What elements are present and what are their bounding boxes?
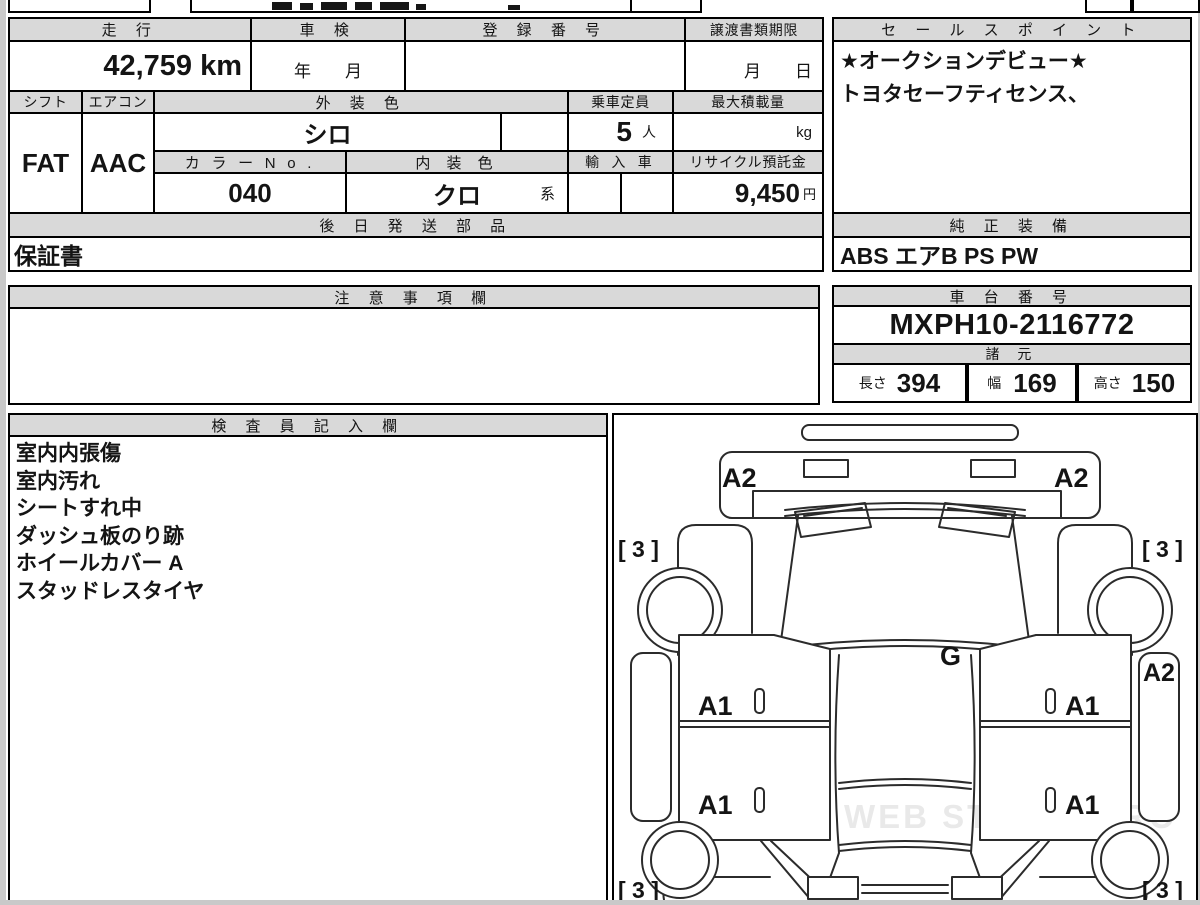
cropped-row-text-fragment	[300, 3, 313, 10]
cropped-cell	[1132, 0, 1200, 13]
shift-header: シフト	[10, 92, 81, 112]
recycle-fee-value: 9,450円	[674, 174, 822, 212]
cropped-cell	[630, 0, 702, 13]
spec-height: 高さ150	[1079, 365, 1190, 401]
notes-table: 注 意 事 項 欄	[8, 285, 820, 405]
roof-side-left	[835, 655, 839, 853]
transfer-docs-value: 月 日	[686, 42, 822, 90]
exterior-color-extra	[502, 114, 567, 150]
capacity-number: 5	[616, 116, 632, 148]
inspector-note: ホイールカバー A	[16, 550, 183, 578]
import-value-right	[622, 174, 672, 212]
cropped-row-text-fragment	[416, 4, 426, 10]
spec-height-value: 150	[1132, 368, 1175, 399]
cropped-row-text-fragment	[321, 2, 347, 10]
notes-header: 注 意 事 項 欄	[10, 287, 818, 307]
capacity-header: 乗車定員	[569, 92, 672, 112]
registration-header: 登 録 番 号	[406, 19, 684, 40]
sales-point-body: ★オークションデビュー★ トヨタセーフティセンス、	[834, 42, 1190, 212]
spec-length-label: 長さ	[859, 373, 887, 393]
recycle-fee-header: リサイクル預託金	[674, 152, 822, 172]
aircon-header: エアコン	[83, 92, 153, 112]
damage-mark-corner-fl: [ 3 ]	[618, 536, 659, 562]
rocker-left	[631, 653, 671, 821]
shift-value: FAT	[10, 114, 81, 212]
inspector-note: シートすれ中	[16, 495, 142, 523]
car-top-view-svg: WEB STUDIO.PRO	[614, 415, 1196, 900]
later-parts-value: 保証書	[10, 238, 822, 270]
a-pillar-right	[1012, 516, 1030, 648]
max-load-header: 最大積載量	[674, 92, 822, 112]
tail-light-left	[808, 877, 858, 899]
color-no-header: カ ラ ー N o .	[155, 152, 345, 172]
recycle-fee-number: 9,450	[735, 178, 800, 209]
later-parts-header: 後 日 発 送 部 品	[10, 214, 822, 236]
inspector-note: ダッシュ板のり跡	[16, 523, 184, 551]
chassis-header: 車 台 番 号	[834, 287, 1190, 305]
damage-mark-hood-right: A2	[1054, 463, 1089, 493]
chassis-specs-table: 車 台 番 号 MXPH10-2116772 諸 元 長さ394 幅169 高さ…	[832, 285, 1192, 403]
roof-cross-line	[839, 779, 971, 789]
aircon-value: AAC	[83, 114, 153, 212]
spec-length: 長さ394	[834, 365, 965, 401]
inspector-notes-table: 検 査 員 記 入 欄 室内内張傷 室内汚れ シートすれ中 ダッシュ板のり跡 ホ…	[8, 413, 608, 900]
damage-mark-hood-left: A2	[722, 463, 757, 493]
cropped-row-text-fragment	[380, 2, 409, 10]
front-bumper	[802, 425, 1018, 440]
specs-header: 諸 元	[834, 345, 1190, 363]
interior-color-name: クロ	[433, 176, 481, 211]
capacity-unit: 人	[642, 122, 656, 142]
cropped-cell	[8, 0, 151, 13]
tail-light-right	[952, 877, 1002, 899]
shaken-header: 車 検	[252, 19, 404, 40]
color-no-value: 040	[155, 174, 345, 212]
damage-mark-corner-rr: [ 3 ]	[1142, 877, 1183, 900]
license-plate-lines	[862, 885, 948, 893]
exterior-color-header: 外 装 色	[155, 92, 567, 112]
shaken-value: 年 月	[252, 42, 404, 90]
max-load-value: kg	[674, 114, 822, 150]
equipment-header: 純 正 装 備	[834, 214, 1190, 236]
damage-mark-door-rr: A1	[1065, 790, 1100, 820]
a-pillar-left	[780, 516, 798, 648]
damage-mark-door-fr: A1	[1065, 691, 1100, 721]
transfer-docs-header: 譲渡書類期限	[686, 19, 822, 40]
cropped-cell	[190, 0, 634, 13]
damage-mark-door-fl: A1	[698, 691, 733, 721]
damage-mark-corner-rl: [ 3 ]	[618, 877, 659, 900]
spec-width-label: 幅	[987, 373, 1001, 393]
sales-point-line: ★オークションデビュー★	[840, 45, 1088, 78]
inspector-note: スタッドレスタイヤ	[16, 578, 204, 606]
recycle-fee-unit: 円	[803, 184, 816, 203]
inspector-note: 室内汚れ	[16, 468, 100, 496]
rear-window-top	[839, 841, 971, 851]
sales-point-line: トヨタセーフティセンス、	[840, 78, 1089, 111]
damage-mark-glass: G	[940, 641, 961, 671]
vehicle-info-table: 走 行 車 検 登 録 番 号 譲渡書類期限 42,759 km 年 月 月 日…	[8, 17, 824, 272]
cropped-row-text-fragment	[355, 2, 372, 10]
equipment-value: ABS エアB PS PW	[834, 238, 1190, 270]
car-damage-diagram: WEB STUDIO.PRO	[612, 413, 1198, 900]
spec-length-value: 394	[897, 368, 940, 399]
interior-color-value: クロ 系	[347, 174, 567, 212]
spec-width: 幅169	[969, 365, 1075, 401]
exterior-color-value: シロ	[155, 114, 500, 150]
interior-color-header: 内 装 色	[347, 152, 567, 172]
notes-body	[10, 309, 818, 403]
interior-color-suffix: 系	[540, 183, 555, 204]
inspector-note: 室内内張傷	[16, 440, 121, 468]
mileage-value: 42,759 km	[10, 42, 250, 90]
cropped-row-text-fragment	[508, 5, 520, 10]
cropped-cell	[1085, 0, 1132, 13]
inspector-body: 室内内張傷 室内汚れ シートすれ中 ダッシュ板のり跡 ホイールカバー A スタッ…	[10, 437, 606, 900]
sales-point-header: セ ー ル ス ポ イ ン ト	[834, 19, 1190, 40]
spec-width-value: 169	[1013, 368, 1056, 399]
chassis-value: MXPH10-2116772	[834, 307, 1190, 343]
import-value-left	[569, 174, 620, 212]
import-header: 輸 入 車	[569, 152, 672, 172]
cropped-row-text-fragment	[272, 2, 292, 10]
inspector-header: 検 査 員 記 入 欄	[10, 415, 606, 435]
registration-value	[406, 42, 684, 90]
damage-mark-rocker-right: A2	[1143, 659, 1175, 687]
sales-point-table: セ ー ル ス ポ イ ン ト ★オークションデビュー★ トヨタセーフティセンス…	[832, 17, 1192, 272]
spec-height-label: 高さ	[1094, 373, 1122, 393]
damage-mark-door-rl: A1	[698, 790, 733, 820]
mileage-header: 走 行	[10, 19, 250, 40]
capacity-value: 5人	[569, 114, 672, 150]
damage-mark-corner-fr: [ 3 ]	[1142, 536, 1183, 562]
